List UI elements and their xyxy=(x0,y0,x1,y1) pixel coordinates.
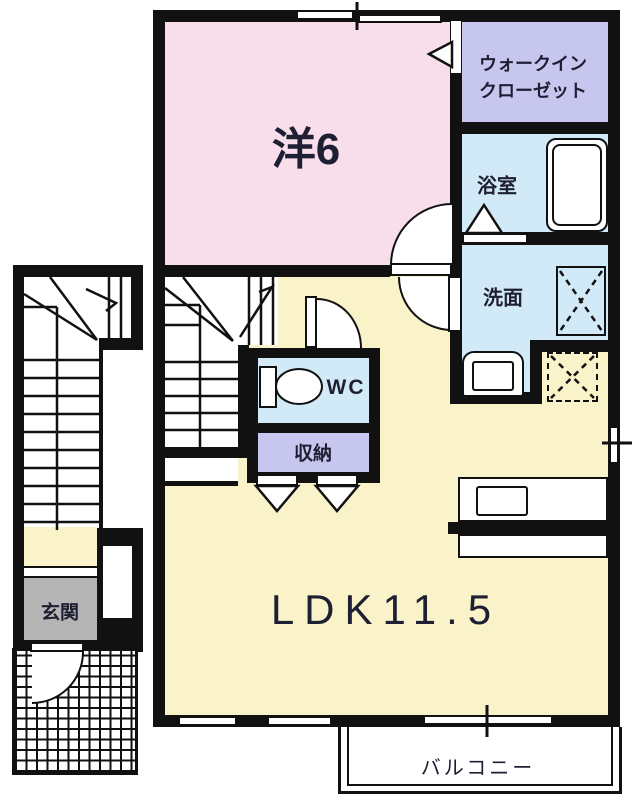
floor-plan: 洋6 ウォークイン クローゼット 浴室 洗面 WC 収納 LDK11.5 玄関 … xyxy=(0,0,634,800)
wall-ext-tread-edge xyxy=(99,350,103,532)
refrigerator-space xyxy=(547,352,598,402)
entrance-landing xyxy=(24,527,99,568)
door-leaf-western-room xyxy=(390,263,452,276)
door-leaf-wc xyxy=(305,296,317,348)
storage-door-track-left xyxy=(256,474,298,486)
wall-ext-top xyxy=(13,265,143,277)
label-ldk: LDK11.5 xyxy=(271,586,501,634)
wall-wc-left xyxy=(247,348,258,483)
window-top-left xyxy=(296,10,354,20)
wall-western-bottom xyxy=(153,265,390,277)
wall-closet-bottom xyxy=(450,122,620,134)
wall-stair-bottom xyxy=(153,447,249,458)
window-bottom-1 xyxy=(178,716,237,726)
entrance-side-door xyxy=(103,546,132,618)
kitchen-lower-counter xyxy=(458,534,608,558)
wall-kitchen-bar xyxy=(448,522,620,534)
storage-door-track-right xyxy=(316,474,358,486)
entrance-step xyxy=(24,566,97,578)
label-walk-in-closet-1: ウォークイン xyxy=(479,50,587,76)
toilet-bowl xyxy=(275,368,323,405)
bathtub-inner xyxy=(552,144,602,226)
wall-landing-line xyxy=(165,481,238,486)
label-washroom: 洗面 xyxy=(483,282,523,311)
interior-stairs-floor2 xyxy=(165,345,238,451)
sliding-door-balcony xyxy=(423,715,553,725)
stair-landing-white xyxy=(165,455,238,482)
label-bathroom: 浴室 xyxy=(477,170,517,199)
label-walk-in-closet-2: クローゼット xyxy=(479,77,587,103)
wall-wc-top xyxy=(247,348,380,358)
wall-main-left xyxy=(153,10,165,727)
washbasin-inner xyxy=(472,361,514,391)
wall-washroom-bottom-right xyxy=(530,340,620,352)
closet-opening xyxy=(451,21,461,73)
label-entrance: 玄関 xyxy=(41,598,79,625)
wall-main-right xyxy=(608,10,620,727)
wall-ext-left xyxy=(13,265,24,650)
wall-wc-storage-mid xyxy=(247,423,380,433)
washing-machine-pan xyxy=(556,266,606,336)
label-balcony: バルコニー xyxy=(421,752,536,781)
label-wc: WC xyxy=(327,376,366,400)
label-western-room: 洋6 xyxy=(272,113,340,177)
door-leaf-entrance xyxy=(30,642,84,652)
bathroom-threshold xyxy=(462,233,528,244)
window-right-wall xyxy=(609,426,619,464)
wall-wc-right xyxy=(369,348,380,483)
kitchen-sink xyxy=(476,486,528,516)
interior-stairs-floor xyxy=(165,277,278,345)
label-storage: 収納 xyxy=(294,439,332,466)
window-top-right xyxy=(358,14,442,23)
door-leaf-washroom xyxy=(448,276,462,332)
window-bottom-2 xyxy=(267,716,332,726)
wall-ext-notch xyxy=(99,338,143,350)
